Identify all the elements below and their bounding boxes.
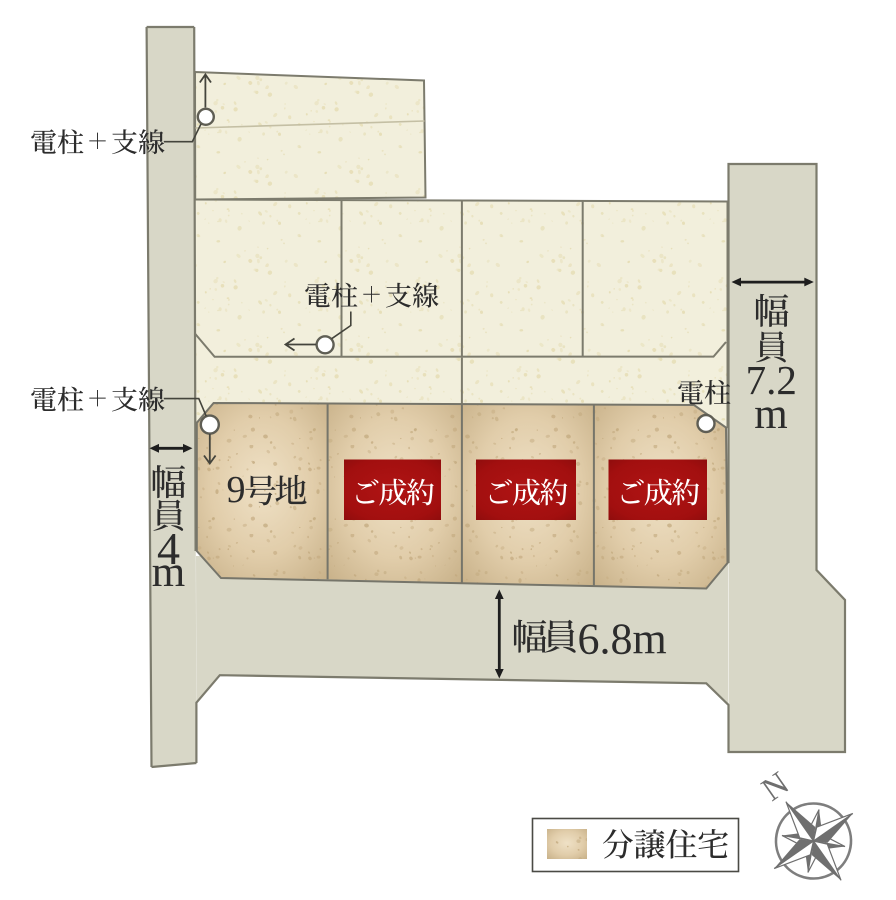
svg-text:9: 9 (227, 469, 246, 511)
svg-text:m: m (754, 391, 787, 438)
svg-text:m: m (152, 549, 185, 596)
svg-text:N: N (756, 765, 796, 808)
svg-text:6.8m: 6.8m (578, 615, 667, 664)
